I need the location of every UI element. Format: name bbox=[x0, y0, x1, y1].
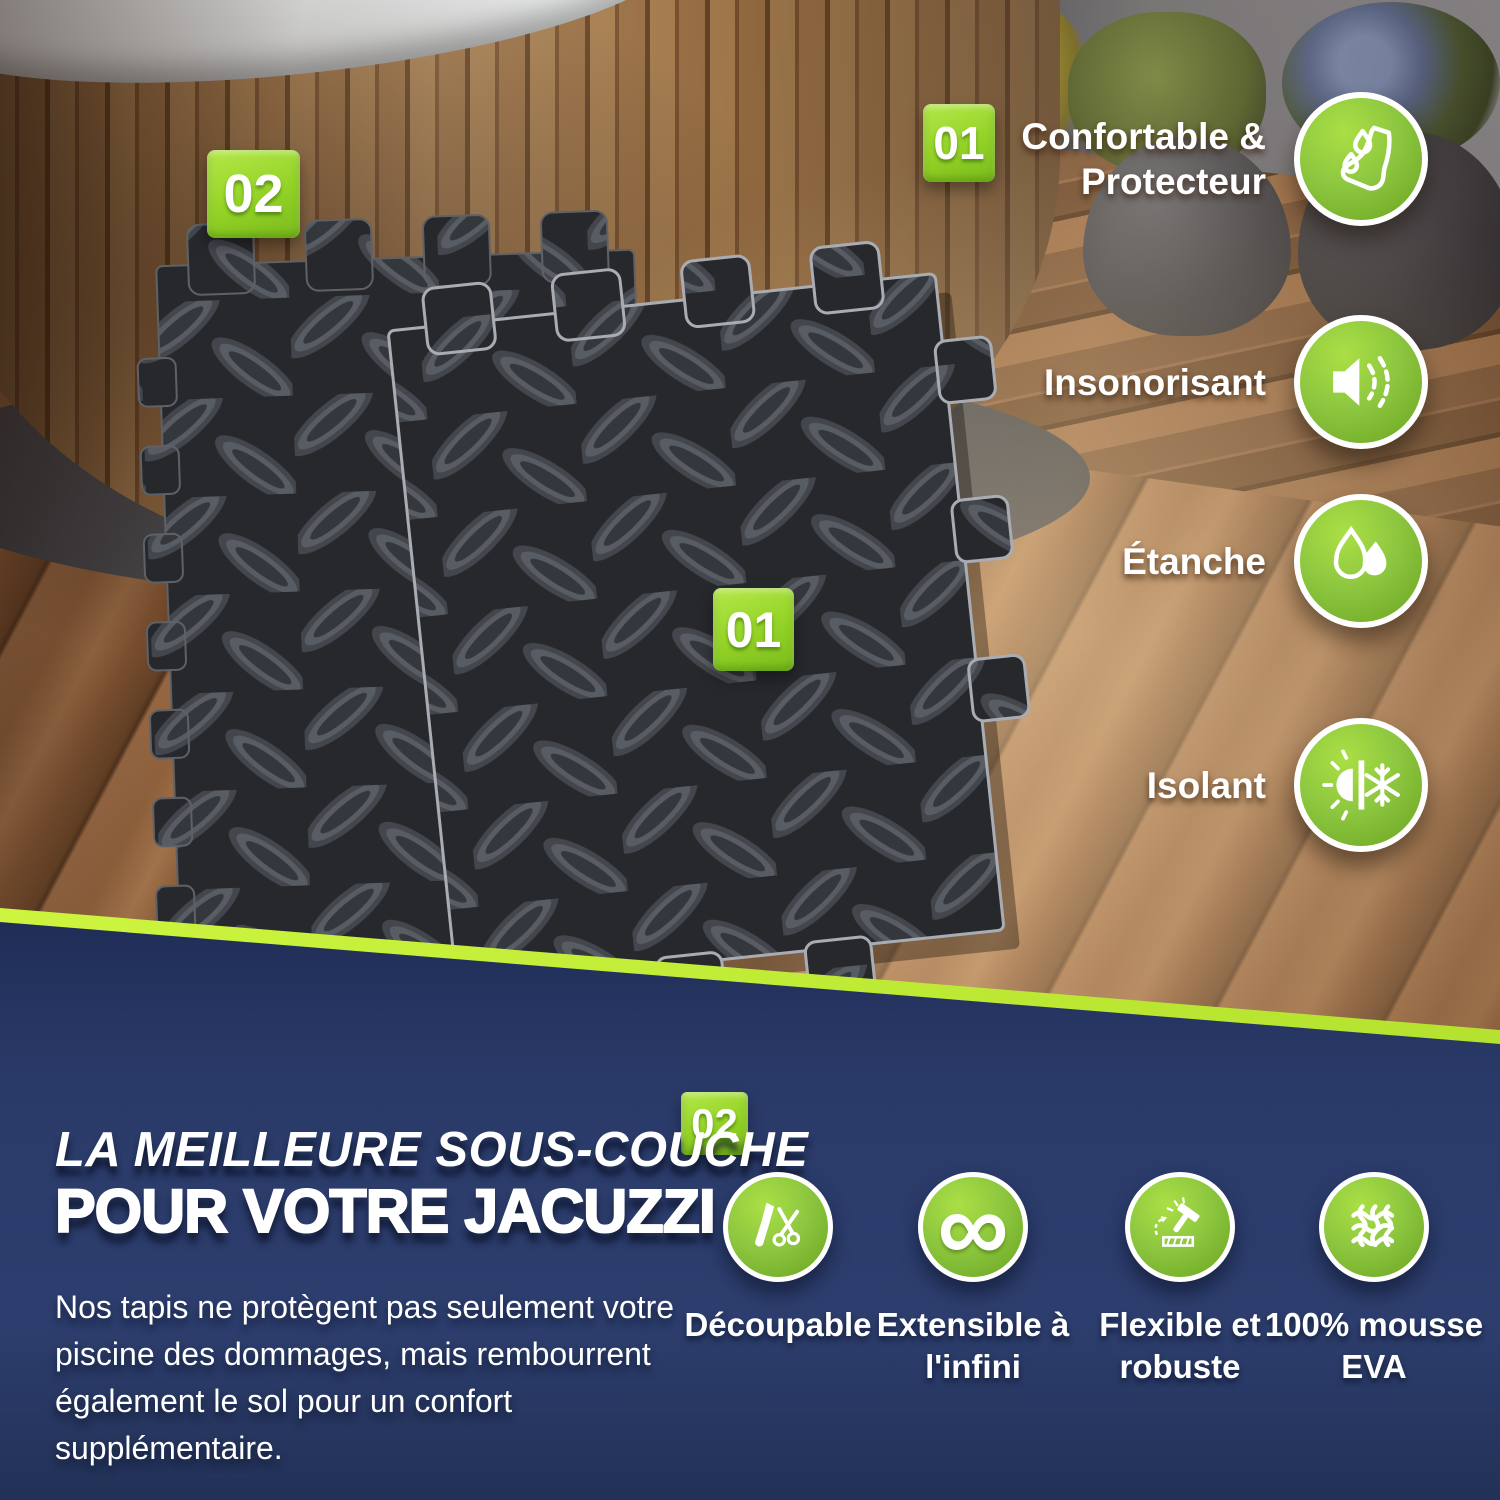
feature-label: Confortable & Protecteur bbox=[936, 114, 1266, 204]
feature-eva-foam: 100% mousse EVA bbox=[1254, 1172, 1494, 1388]
sun-snowflake-icon bbox=[1294, 718, 1428, 852]
feature-insulating: Isolant bbox=[936, 718, 1428, 852]
eva-foam-mesh-icon bbox=[1319, 1172, 1429, 1282]
infinity-icon: ∞ bbox=[918, 1172, 1028, 1282]
feature-comfortable-protective: Confortable & Protecteur bbox=[936, 92, 1428, 226]
feature-soundproof: Insonorisant bbox=[936, 315, 1428, 449]
speaker-icon bbox=[1294, 315, 1428, 449]
water-drops-icon bbox=[1294, 494, 1428, 628]
feature-label: Insonorisant bbox=[936, 360, 1266, 405]
badge-mat-01: 01 bbox=[713, 588, 794, 671]
feature-label: Isolant bbox=[936, 763, 1266, 808]
foot-drops-icon bbox=[1294, 92, 1428, 226]
badge-mat-02: 02 bbox=[207, 150, 300, 238]
cutter-scissors-icon bbox=[723, 1172, 833, 1282]
hammer-icon bbox=[1125, 1172, 1235, 1282]
section-paragraph: Nos tapis ne protègent pas seulement vot… bbox=[55, 1284, 695, 1472]
section-title-line1: LA MEILLEURE SOUS-COUCHE bbox=[55, 1122, 808, 1178]
feature-label: Étanche bbox=[936, 539, 1266, 584]
section-title-line2: POUR VOTRE JACUZZI bbox=[55, 1176, 715, 1246]
feature-label: Extensible à l'infini bbox=[853, 1304, 1093, 1388]
feature-waterproof: Étanche bbox=[936, 494, 1428, 628]
feature-label: 100% mousse EVA bbox=[1254, 1304, 1494, 1388]
feature-extensible: ∞ Extensible à l'infini bbox=[853, 1172, 1093, 1388]
product-infographic: 02 01 01 Confortable & Protecteur bbox=[0, 0, 1500, 1500]
